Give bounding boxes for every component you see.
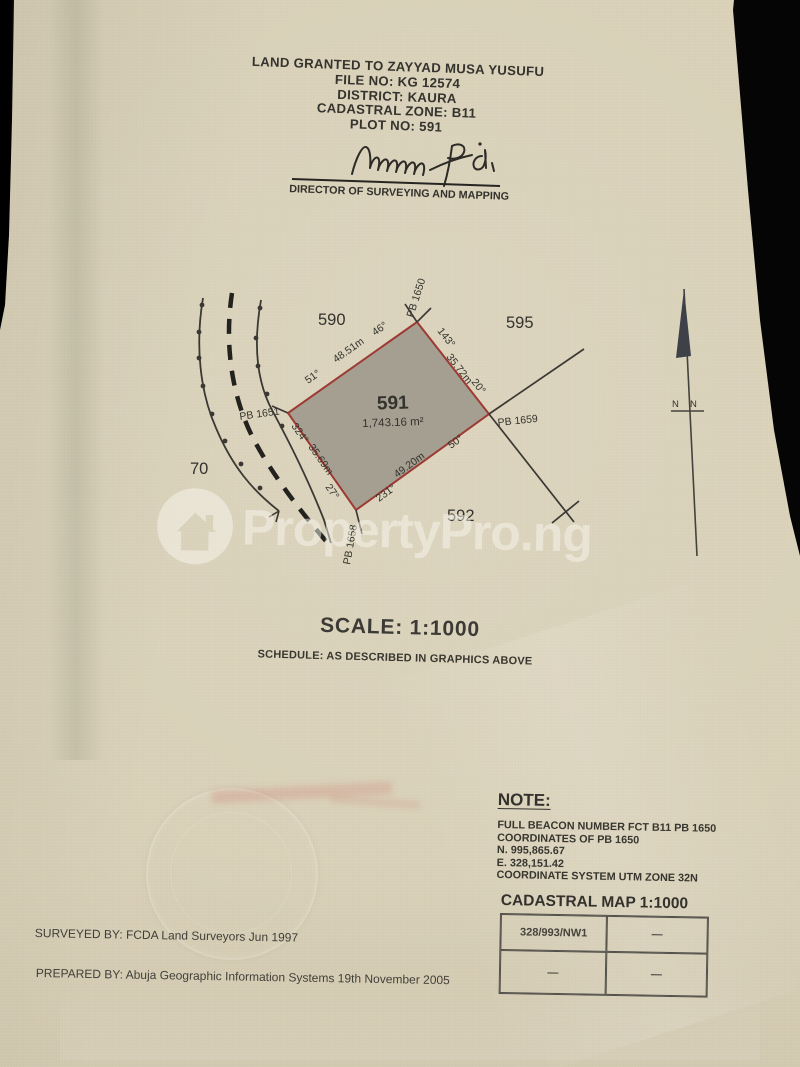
beacon-label-pb1659: PB 1659 — [497, 413, 538, 429]
table-cell: 328/993/NW1 — [500, 914, 607, 952]
table-cell: — — [606, 916, 708, 954]
bearing-label: 143° — [435, 325, 458, 350]
cadastral-map-table: 328/993/NW1 — — — — [499, 913, 709, 998]
table-cell: — — [606, 952, 708, 997]
propertypro-house-icon — [155, 486, 235, 566]
cadastral-map-title: CADASTRAL MAP 1:1000 — [501, 892, 688, 913]
neighbor-595: 595 — [506, 314, 534, 332]
bearing-label: 51° — [303, 368, 323, 387]
note-title: NOTE: — [498, 790, 748, 814]
survey-plan-photo: LAND GRANTED TO ZAYYAD MUSA YUSUFU FILE … — [0, 0, 800, 1067]
north-arrow-icon: N N — [671, 289, 704, 556]
plot-area-label: 1,743.16 m² — [362, 416, 424, 430]
bearing-label: 46° — [370, 320, 390, 339]
neighbor-70: 70 — [190, 460, 208, 478]
title-block: LAND GRANTED TO ZAYYAD MUSA YUSUFU FILE … — [196, 53, 598, 141]
beacon-label-pb1651: PB 1651 — [239, 405, 281, 423]
watermark-text: PropertyPro.ng — [241, 487, 593, 574]
signature-mark — [352, 142, 494, 186]
propertypro-watermark: PropertyPro.ng — [155, 485, 593, 574]
plot-591-parcel — [288, 322, 489, 510]
plot-number-label: 591 — [377, 392, 410, 414]
boundary-extension-ne — [489, 349, 584, 414]
north-label-right: N — [690, 399, 697, 410]
note-block: NOTE: FULL BEACON NUMBER FCT B11 PB 1650… — [496, 790, 748, 886]
neighbor-590: 590 — [318, 311, 346, 329]
beacon-label-pb1650: PB 1650 — [404, 277, 428, 319]
table-cell: — — [500, 950, 607, 995]
north-label-left: N — [672, 399, 679, 410]
